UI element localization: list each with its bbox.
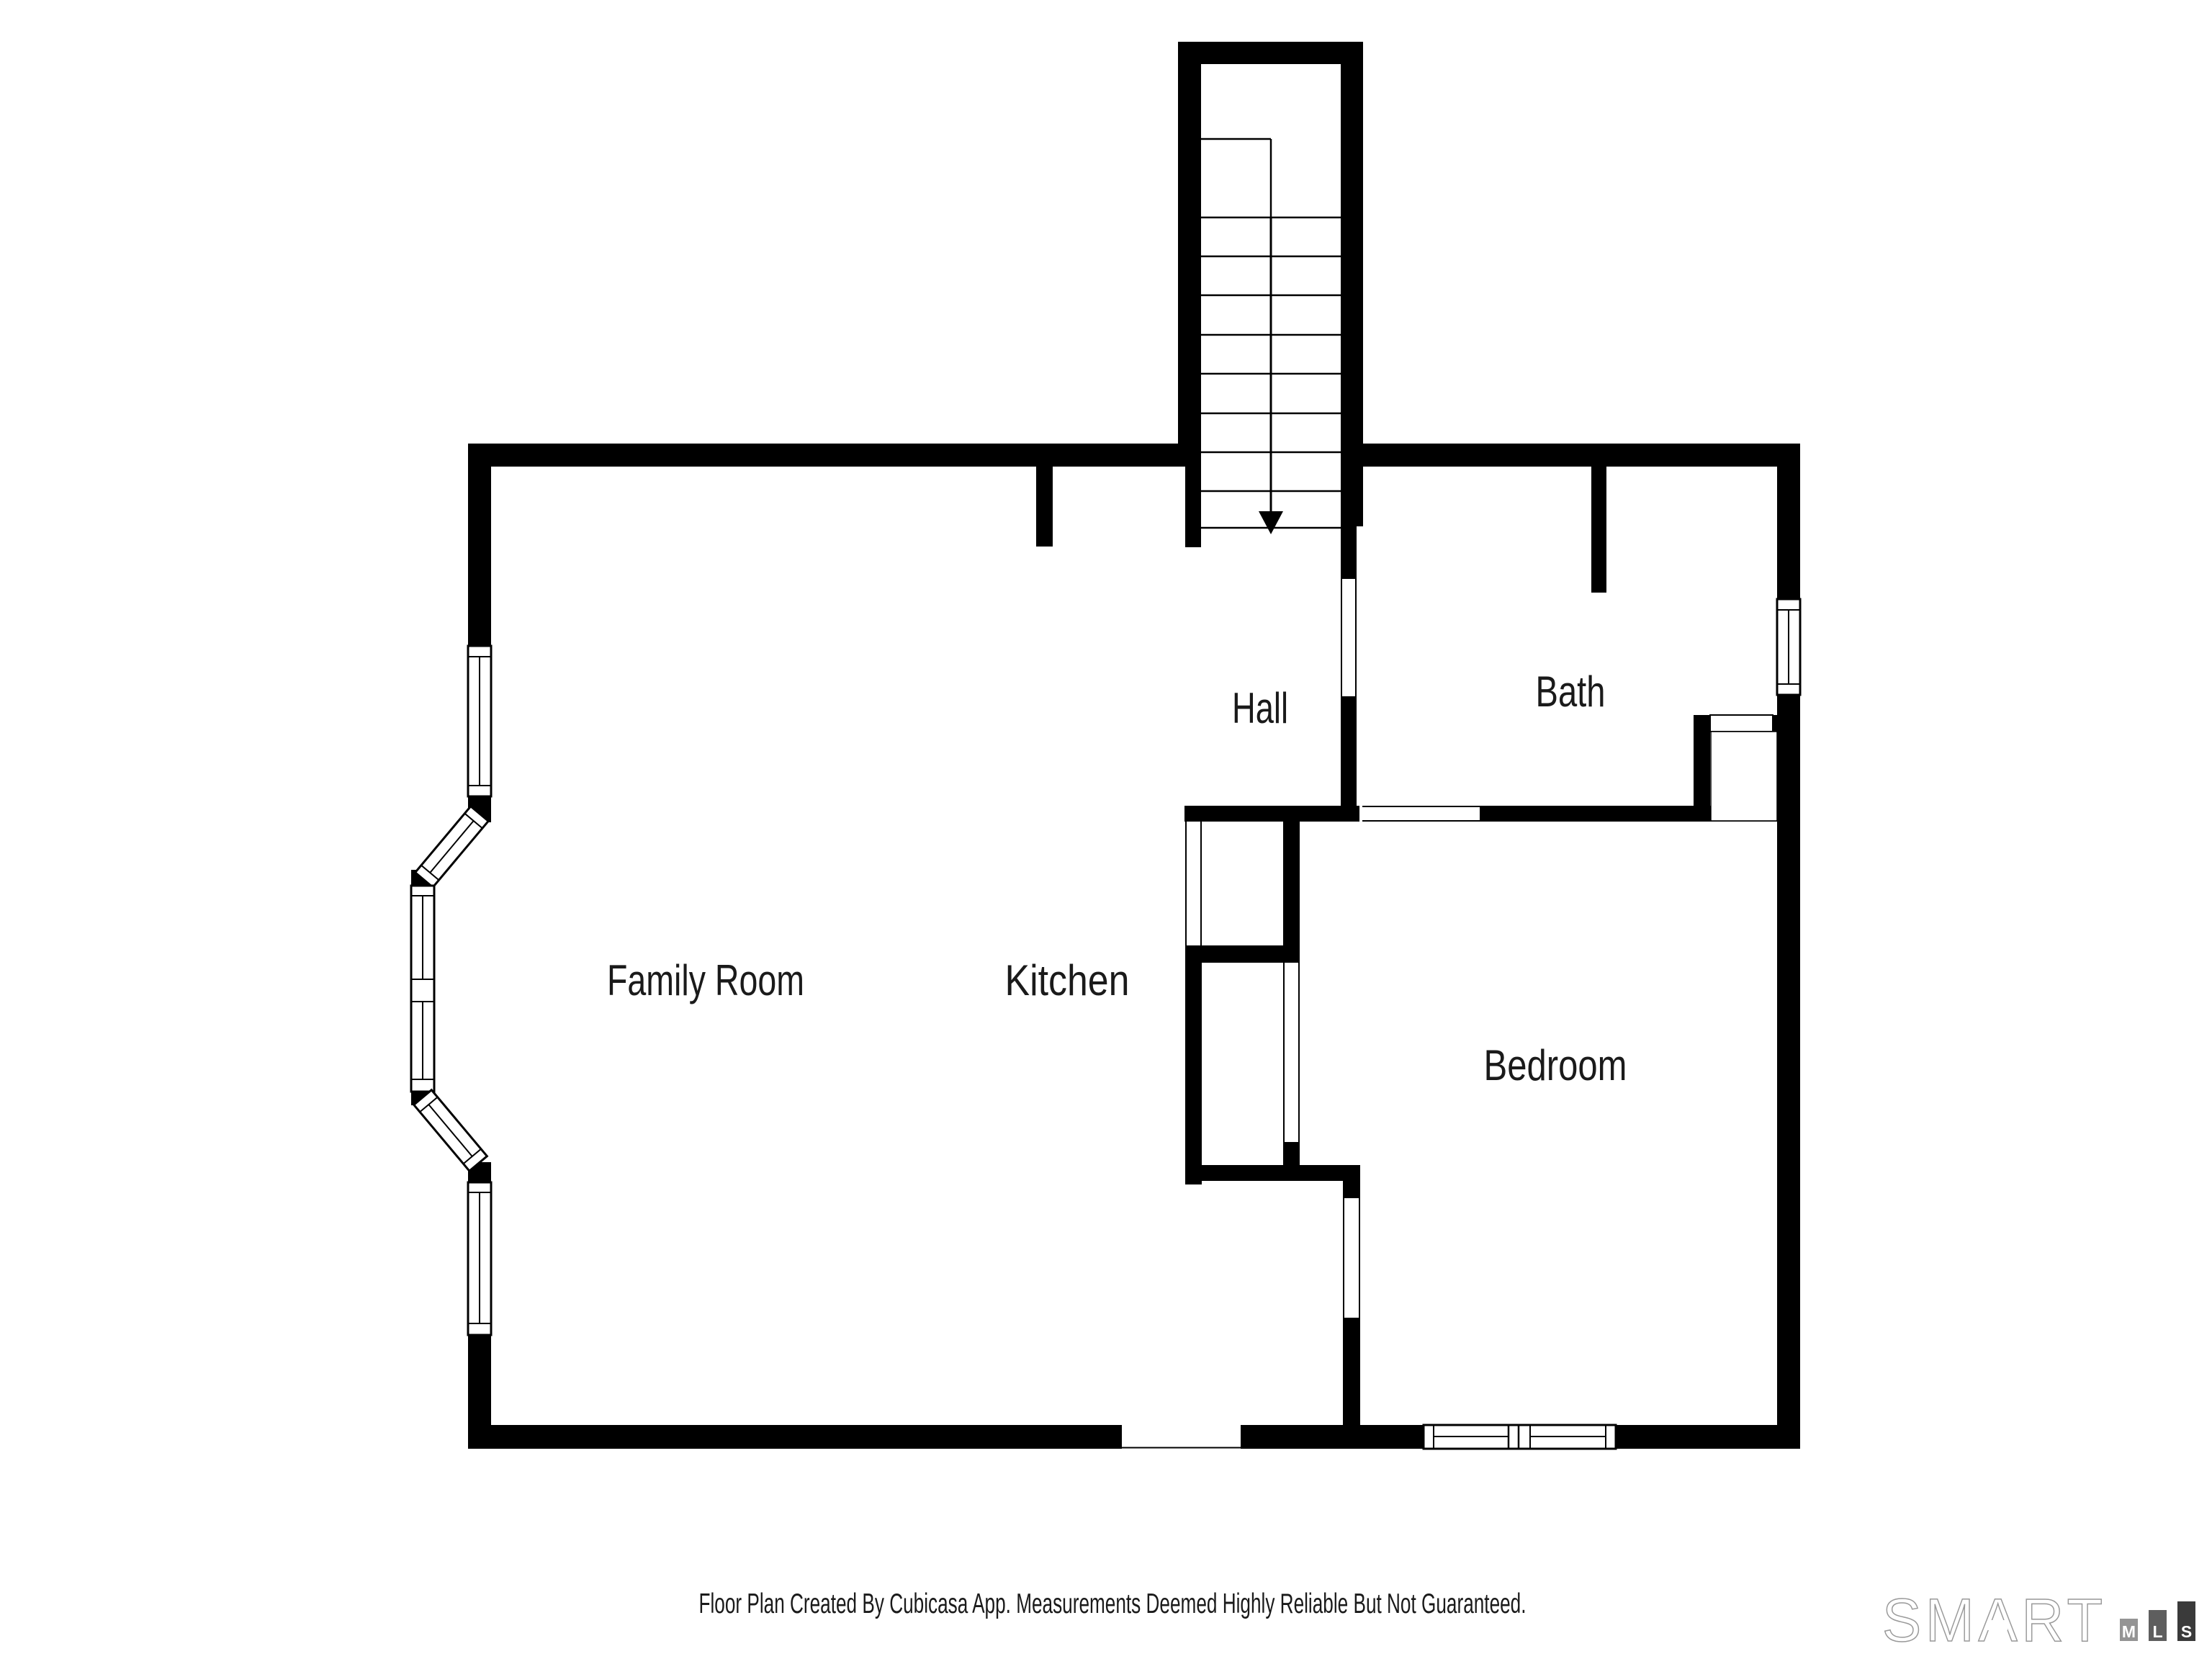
svg-text:Kitchen: Kitchen [1005,956,1130,1004]
svg-text:Bath: Bath [1536,667,1606,716]
svg-text:L: L [2152,1622,2162,1641]
svg-text:M: M [2122,1622,2136,1641]
svg-text:S: S [2181,1622,2192,1641]
svg-text:Hall: Hall [1232,684,1288,732]
svg-text:Floor Plan Created By Cubicasa: Floor Plan Created By Cubicasa App. Meas… [699,1588,1527,1619]
svg-text:Family Room: Family Room [607,956,804,1004]
svg-text:Bedroom: Bedroom [1484,1041,1627,1089]
